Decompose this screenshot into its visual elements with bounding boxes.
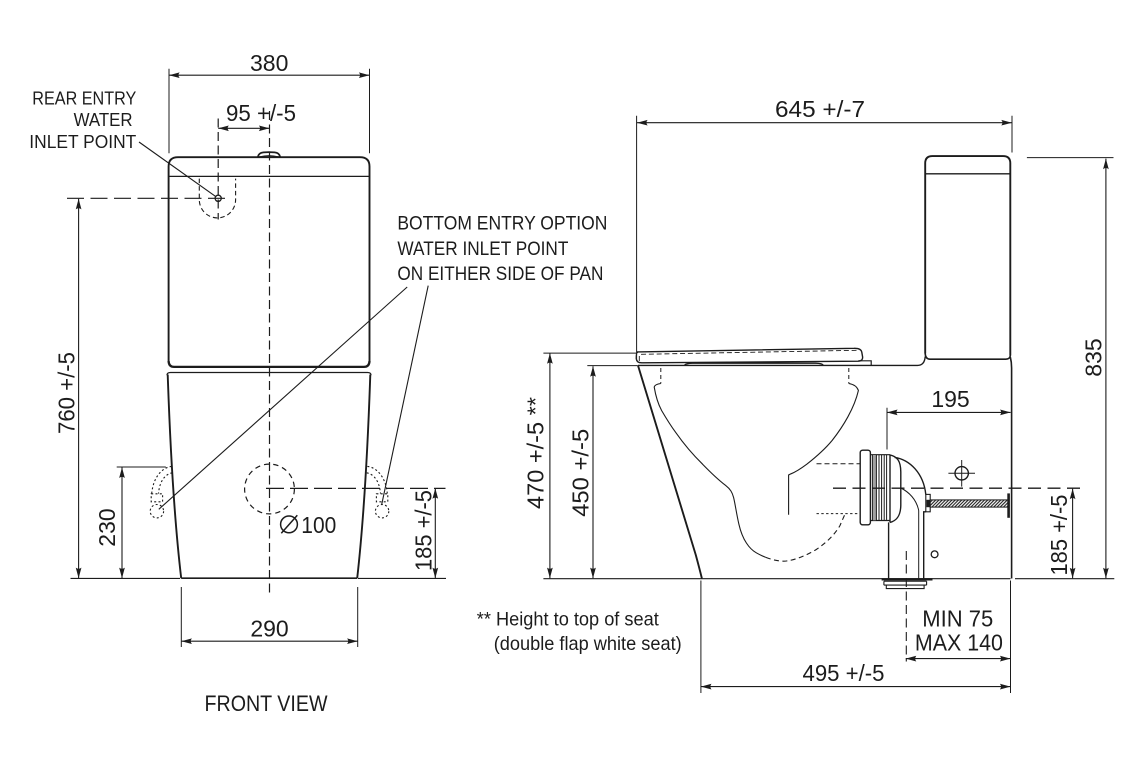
svg-text:ON EITHER SIDE OF PAN: ON EITHER SIDE OF PAN (397, 263, 603, 285)
svg-text:470 +/-5 **: 470 +/-5 ** (523, 397, 549, 509)
svg-text:230: 230 (94, 508, 120, 546)
svg-text:760 +/-5: 760 +/-5 (54, 352, 80, 434)
svg-text:95 +/-5: 95 +/-5 (226, 100, 296, 126)
svg-text:WATER: WATER (74, 109, 133, 130)
svg-text:185 +/-5: 185 +/-5 (411, 490, 437, 571)
svg-text:290: 290 (250, 615, 288, 641)
svg-text:645 +/-7: 645 +/-7 (775, 96, 865, 122)
svg-text:835: 835 (1081, 338, 1107, 376)
svg-text:BOTTOM ENTRY OPTION: BOTTOM ENTRY OPTION (397, 212, 607, 234)
svg-text:WATER INLET POINT: WATER INLET POINT (397, 238, 568, 260)
svg-text:380: 380 (250, 50, 288, 76)
svg-text:INLET POINT: INLET POINT (29, 131, 136, 152)
svg-text:MIN 75: MIN 75 (922, 605, 993, 631)
svg-text:MAX 140: MAX 140 (915, 629, 1003, 655)
svg-text:100: 100 (301, 512, 336, 538)
svg-text:** Height to top of seat: ** Height to top of seat (477, 609, 660, 631)
svg-text:REAR ENTRY: REAR ENTRY (32, 88, 136, 109)
svg-text:450 +/-5: 450 +/-5 (568, 429, 594, 517)
svg-text:195: 195 (931, 386, 969, 412)
svg-text:495 +/-5: 495 +/-5 (803, 660, 885, 686)
svg-text:FRONT VIEW: FRONT VIEW (205, 691, 328, 716)
svg-text:(double flap white seat): (double flap white seat) (494, 633, 682, 655)
svg-text:185 +/-5: 185 +/-5 (1046, 495, 1072, 576)
